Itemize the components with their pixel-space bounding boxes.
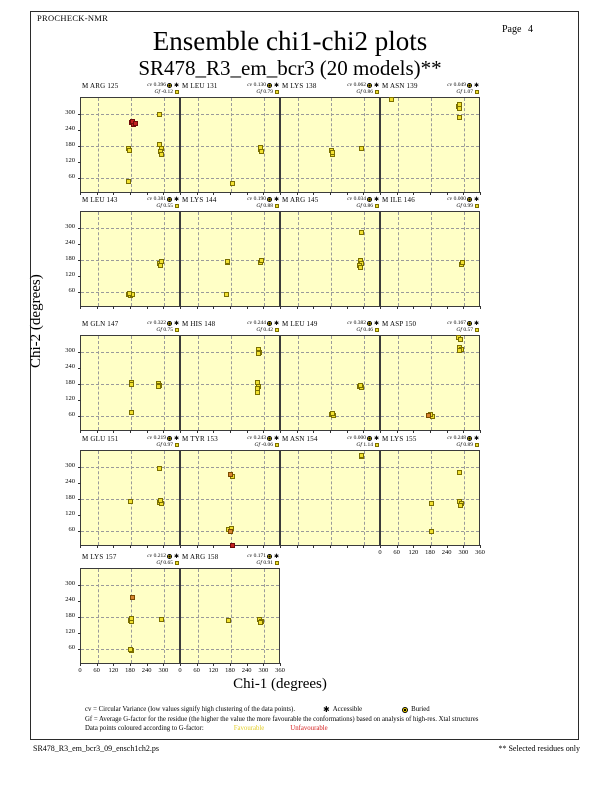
axis-tick — [130, 430, 131, 433]
gf-colour-icon — [275, 90, 280, 95]
data-point — [330, 150, 335, 155]
gf-colour-icon — [375, 90, 380, 95]
cv-prefix: cv — [447, 320, 452, 327]
data-point — [429, 529, 434, 534]
grid-line — [181, 352, 279, 353]
data-point — [230, 543, 235, 548]
gf-row: Gf0.86 — [356, 203, 379, 210]
procheck-page: PROCHECK-NMR Page 4 Ensemble chi1-chi2 p… — [0, 0, 612, 792]
chi1-chi2-plot — [380, 211, 480, 307]
y-tick-label: 240 — [53, 125, 75, 132]
residue-label: M ILE 146 — [382, 196, 415, 204]
gf-colour-icon — [375, 443, 380, 448]
y-tick-label: 60 — [53, 411, 75, 418]
axis-tick — [78, 499, 81, 500]
plot-header: M ARG 158cv0.171✱Gf0.91 — [182, 553, 279, 567]
axis-tick — [447, 545, 448, 548]
plot-header: M HIS 148cv0.244✱Gf0.42 — [182, 320, 279, 334]
cv-prefix: cv — [247, 196, 252, 203]
axis-tick — [480, 192, 481, 195]
plot-annotation: cv0.000✱Gf0.99 — [447, 196, 479, 209]
plot-annotation: cv0.212✱Gf0.65 — [147, 553, 179, 566]
cv-prefix: cv — [347, 435, 352, 442]
gf-value: -0.12 — [162, 89, 173, 96]
axis-tick — [78, 617, 81, 618]
residue-label: M GLU 151 — [82, 435, 118, 443]
chi1-chi2-plot — [80, 211, 180, 307]
accessible-icon: ✱ — [474, 321, 479, 326]
axis-tick — [197, 663, 198, 666]
accessible-icon: ✱ — [474, 436, 479, 441]
axis-tick — [380, 430, 381, 433]
gf-prefix: Gf — [356, 327, 362, 334]
grid-line — [231, 212, 232, 306]
data-point — [130, 595, 135, 600]
gf-row: Gf0.86 — [356, 89, 379, 96]
buried-icon — [267, 83, 272, 88]
page-title: Ensemble chi1-chi2 plots — [30, 26, 550, 57]
chi1-chi2-plot — [380, 97, 480, 193]
x-tick-label: 60 — [389, 549, 405, 556]
legend-unfavourable-label: Unfavourable — [290, 724, 327, 734]
gf-value: 0.42 — [263, 327, 273, 334]
grid-line — [464, 212, 465, 306]
axis-tick — [163, 306, 164, 309]
gf-row: Gf0.75 — [156, 327, 179, 334]
axis-tick — [78, 531, 81, 532]
axis-tick — [78, 601, 81, 602]
residue-label: M ARG 158 — [182, 553, 218, 561]
y-tick-label: 180 — [53, 494, 75, 501]
grid-line — [81, 114, 179, 115]
x-tick-label: 0 — [72, 667, 88, 674]
gf-row: Gf0.88 — [256, 203, 279, 210]
grid-line — [364, 212, 365, 306]
axis-tick — [397, 192, 398, 195]
grid-line — [281, 114, 379, 115]
x-tick-label: 0 — [372, 549, 388, 556]
data-point — [256, 351, 261, 356]
plot-annotation: cv0.322✱Gf0.75 — [147, 320, 179, 333]
gf-row: Gf0.89 — [456, 442, 479, 449]
grid-line — [464, 98, 465, 192]
data-point — [133, 121, 138, 126]
data-point — [458, 503, 463, 508]
axis-tick — [78, 384, 81, 385]
data-point — [429, 501, 434, 506]
axis-tick — [313, 192, 314, 195]
data-point — [127, 148, 132, 153]
grid-line — [164, 451, 165, 545]
axis-tick — [297, 192, 298, 195]
cv-prefix: cv — [447, 82, 452, 89]
grid-line — [381, 352, 479, 353]
cv-prefix: cv — [247, 320, 252, 327]
chi1-chi2-plot — [380, 335, 480, 431]
grid-line — [431, 212, 432, 306]
axis-tick — [247, 545, 248, 548]
axis-tick — [180, 663, 181, 666]
gf-colour-icon — [375, 204, 380, 209]
axis-tick — [78, 400, 81, 401]
chi1-chi2-plot — [180, 97, 280, 193]
axis-tick — [78, 146, 81, 147]
residue-label: M LYS 155 — [382, 435, 417, 443]
chi1-chi2-plot — [180, 450, 280, 546]
plot-annotation: cv0.171✱Gf0.91 — [247, 553, 279, 566]
accessible-icon: ✱ — [174, 436, 179, 441]
grid-line — [364, 451, 365, 545]
data-point — [426, 413, 431, 418]
residue-label: M ARG 125 — [82, 82, 118, 90]
grid-line — [264, 336, 265, 430]
accessible-icon: ✱ — [174, 321, 179, 326]
axis-tick — [463, 545, 464, 548]
chi1-chi2-plot — [180, 568, 280, 664]
x-tick-label: 60 — [189, 667, 205, 674]
axis-tick — [113, 430, 114, 433]
grid-line — [181, 467, 279, 468]
x-axis-title: Chi-1 (degrees) — [80, 676, 480, 693]
residue-label: M LEU 143 — [82, 196, 118, 204]
gf-row: Gf0.99 — [456, 203, 479, 210]
buried-icon — [167, 83, 172, 88]
grid-line — [164, 212, 165, 306]
axis-tick — [78, 276, 81, 277]
data-point — [457, 106, 462, 111]
axis-tick — [463, 192, 464, 195]
accessible-icon: ✱ — [474, 83, 479, 88]
axis-tick — [78, 585, 81, 586]
legend-cv-line: cv = Circular Variance (low values signi… — [85, 705, 555, 715]
data-point — [128, 499, 133, 504]
axis-tick — [180, 306, 181, 309]
grid-line — [264, 98, 265, 192]
axis-tick — [78, 352, 81, 353]
buried-icon — [467, 436, 472, 441]
accessible-icon: ✱ — [274, 321, 279, 326]
axis-tick — [78, 368, 81, 369]
x-tick-label: 120 — [205, 667, 221, 674]
y-tick-label: 60 — [53, 173, 75, 180]
y-tick-label: 300 — [53, 223, 75, 230]
grid-line — [364, 336, 365, 430]
gf-prefix: Gf — [155, 89, 161, 96]
data-point — [159, 152, 164, 157]
axis-tick — [247, 430, 248, 433]
gf-value: 0.46 — [363, 327, 373, 334]
axis-tick — [78, 483, 81, 484]
data-point — [129, 382, 134, 387]
axis-tick — [247, 663, 248, 666]
legend-accessible-label: Accessible — [333, 705, 362, 715]
axis-tick — [480, 430, 481, 433]
grid-line — [181, 114, 279, 115]
gf-prefix: Gf — [156, 442, 162, 449]
cv-prefix: cv — [347, 82, 352, 89]
axis-tick — [430, 545, 431, 548]
axis-tick — [130, 663, 131, 666]
axis-tick — [380, 192, 381, 195]
axis-tick — [78, 467, 81, 468]
axis-tick — [347, 192, 348, 195]
axis-tick — [247, 192, 248, 195]
plot-header: M LYS 144cv0.190✱Gf0.88 — [182, 196, 279, 210]
data-point — [228, 472, 233, 477]
buried-icon — [367, 83, 372, 88]
axis-tick — [163, 430, 164, 433]
axis-tick — [297, 430, 298, 433]
axis-tick — [347, 306, 348, 309]
axis-tick — [163, 192, 164, 195]
gf-row: Gf-0.12 — [155, 89, 179, 96]
chi1-chi2-plot — [280, 450, 380, 546]
axis-tick — [113, 306, 114, 309]
residue-label: M ARG 145 — [282, 196, 318, 204]
axis-tick — [430, 192, 431, 195]
residue-label: M LYS 157 — [82, 553, 117, 561]
axis-tick — [230, 192, 231, 195]
x-tick-label: 300 — [455, 549, 471, 556]
axis-tick — [330, 430, 331, 433]
axis-tick — [297, 306, 298, 309]
gf-value: 0.57 — [463, 327, 473, 334]
gf-colour-icon — [175, 204, 180, 209]
gf-colour-icon — [275, 204, 280, 209]
axis-tick — [330, 192, 331, 195]
grid-line — [364, 98, 365, 192]
plot-annotation: cv0.062✱Gf0.86 — [347, 82, 379, 95]
data-point — [228, 529, 233, 534]
axis-tick — [130, 545, 131, 548]
gf-colour-icon — [175, 90, 180, 95]
axis-tick — [97, 545, 98, 548]
plot-header: M GLN 147cv0.322✱Gf0.75 — [82, 320, 179, 334]
axis-tick — [180, 430, 181, 433]
buried-icon — [467, 321, 472, 326]
axis-tick — [180, 192, 181, 195]
axis-tick — [113, 545, 114, 548]
gf-row: Gf0.57 — [456, 327, 479, 334]
plot-header: M TYR 153cv0.243✱Gf-0.06 — [182, 435, 279, 449]
x-tick-label: 240 — [239, 667, 255, 674]
data-point — [224, 292, 229, 297]
x-tick-label: 240 — [139, 667, 155, 674]
plot-annotation: cv0.130✱Gf0.79 — [247, 82, 279, 95]
axis-tick — [413, 430, 414, 433]
y-tick-label: 240 — [53, 363, 75, 370]
data-point — [457, 470, 462, 475]
axis-tick — [147, 545, 148, 548]
accessible-icon: ✱ — [274, 436, 279, 441]
gf-colour-icon — [175, 443, 180, 448]
axis-tick — [78, 130, 81, 131]
cv-prefix: cv — [147, 320, 152, 327]
gf-prefix: Gf — [456, 442, 462, 449]
axis-tick — [113, 192, 114, 195]
plot-header: M ASN 139cv0.049✱Gf1.07 — [382, 82, 479, 96]
grid-line — [81, 352, 179, 353]
axis-tick — [197, 192, 198, 195]
axis-tick — [213, 545, 214, 548]
plot-annotation: cv0.034✱Gf0.86 — [347, 196, 379, 209]
axis-tick — [263, 430, 264, 433]
gf-row: Gf0.65 — [156, 560, 179, 567]
plot-annotation: cv0.243✱Gf-0.06 — [247, 435, 279, 448]
axis-tick — [78, 515, 81, 516]
data-point — [159, 617, 164, 622]
gf-row: Gf0.55 — [156, 203, 179, 210]
axis-tick — [78, 292, 81, 293]
axis-tick — [213, 663, 214, 666]
data-point — [359, 146, 364, 151]
axis-tick — [347, 430, 348, 433]
gf-prefix: Gf — [256, 89, 262, 96]
plot-header: M LYS 138cv0.062✱Gf0.86 — [282, 82, 379, 96]
axis-tick — [480, 545, 481, 548]
legend-cv-text: cv = Circular Variance (low values signi… — [85, 705, 295, 715]
axis-tick — [413, 306, 414, 309]
axis-tick — [347, 545, 348, 548]
plot-header: M ASP 150cv0.167✱Gf0.57 — [382, 320, 479, 334]
plot-header: M LYS 157cv0.212✱Gf0.65 — [82, 553, 179, 567]
legend-block: cv = Circular Variance (low values signi… — [85, 705, 555, 734]
data-point — [230, 181, 235, 186]
residue-label: M HIS 148 — [182, 320, 215, 328]
gf-value: 0.75 — [163, 327, 173, 334]
y-tick-label: 120 — [53, 628, 75, 635]
gf-value: 0.65 — [163, 560, 173, 567]
y-tick-label: 300 — [53, 109, 75, 116]
gf-prefix: Gf — [456, 327, 462, 334]
buried-icon — [267, 321, 272, 326]
gf-row: Gf0.79 — [256, 89, 279, 96]
axis-tick — [263, 192, 264, 195]
grid-line — [81, 467, 179, 468]
chi1-chi2-plot — [180, 211, 280, 307]
data-point — [259, 258, 264, 263]
grid-line — [381, 114, 479, 115]
grid-line — [164, 569, 165, 663]
grid-line — [464, 336, 465, 430]
axis-tick — [380, 545, 381, 548]
y-tick-label: 240 — [53, 478, 75, 485]
axis-tick — [147, 430, 148, 433]
axis-tick — [330, 306, 331, 309]
residue-label: M LEU 149 — [282, 320, 318, 328]
y-tick-label: 120 — [53, 510, 75, 517]
accessible-icon: ✱ — [374, 83, 379, 88]
axis-tick — [447, 306, 448, 309]
grid-line — [331, 98, 332, 192]
plot-header: M LEU 131cv0.130✱Gf0.79 — [182, 82, 279, 96]
buried-icon — [167, 197, 172, 202]
app-name: PROCHECK-NMR — [37, 13, 108, 23]
axis-tick — [263, 545, 264, 548]
legend-gf-line: Gf = Average G-factor for the residue (t… — [85, 715, 555, 725]
plot-header: M LYS 155cv0.248✱Gf0.89 — [382, 435, 479, 449]
gf-row: Gf0.42 — [256, 327, 279, 334]
axis-tick — [147, 306, 148, 309]
axis-tick — [330, 545, 331, 548]
axis-tick — [213, 306, 214, 309]
gf-colour-icon — [475, 328, 480, 333]
axis-tick — [97, 306, 98, 309]
data-point — [389, 97, 394, 102]
axis-tick — [363, 545, 364, 548]
y-tick-label: 120 — [53, 395, 75, 402]
axis-tick — [447, 430, 448, 433]
gf-prefix: Gf — [256, 327, 262, 334]
gf-value: -0.06 — [262, 442, 273, 449]
axis-tick — [80, 306, 81, 309]
gf-prefix: Gf — [356, 203, 362, 210]
accessible-icon: ✱ — [274, 197, 279, 202]
gf-row: Gf0.97 — [156, 442, 179, 449]
axis-tick — [97, 192, 98, 195]
plot-annotation: cv0.396✱Gf-0.12 — [147, 82, 179, 95]
axis-tick — [230, 430, 231, 433]
plot-annotation: cv0.049✱Gf1.07 — [447, 82, 479, 95]
plot-header: M ARG 145cv0.034✱Gf0.86 — [282, 196, 379, 210]
accessible-icon: ✱ — [374, 321, 379, 326]
data-point — [359, 453, 364, 458]
data-point — [457, 115, 462, 120]
chi1-chi2-plot — [80, 568, 180, 664]
grid-line — [264, 212, 265, 306]
residue-label: M ASN 139 — [382, 82, 418, 90]
grid-line — [431, 98, 432, 192]
data-point — [129, 616, 134, 621]
gf-colour-icon — [475, 204, 480, 209]
plot-header: M ILE 146cv0.000✱Gf0.99 — [382, 196, 479, 210]
axis-tick — [263, 663, 264, 666]
accessible-icon: ✱ — [374, 197, 379, 202]
accessible-icon: ✱ — [274, 83, 279, 88]
gf-row: Gf1.07 — [456, 89, 479, 96]
cv-prefix: cv — [447, 435, 452, 442]
axis-tick — [80, 192, 81, 195]
grid-line — [281, 352, 379, 353]
gf-value: 1.07 — [463, 89, 473, 96]
data-point — [258, 145, 263, 150]
buried-icon — [167, 554, 172, 559]
plot-header: M LEU 149cv0.382✱Gf0.46 — [282, 320, 379, 334]
data-point — [126, 179, 131, 184]
gf-colour-icon — [275, 561, 280, 566]
ps-filename: SR478_R3_em_bcr3_09_ensch1ch2.ps — [33, 744, 159, 753]
gf-colour-icon — [375, 328, 380, 333]
axis-tick — [130, 306, 131, 309]
gf-colour-icon — [175, 561, 180, 566]
axis-tick — [147, 192, 148, 195]
grid-line — [331, 212, 332, 306]
grid-line — [331, 451, 332, 545]
axis-tick — [397, 430, 398, 433]
cv-prefix: cv — [147, 82, 152, 89]
y-tick-label: 240 — [53, 239, 75, 246]
axis-tick — [230, 663, 231, 666]
legend-buried-label: Buried — [411, 705, 430, 715]
axis-tick — [447, 192, 448, 195]
axis-tick — [280, 663, 281, 666]
data-point — [358, 265, 363, 270]
data-point — [127, 291, 132, 296]
grid-line — [264, 569, 265, 663]
axis-tick — [78, 649, 81, 650]
axis-tick — [78, 260, 81, 261]
grid-line — [281, 467, 379, 468]
